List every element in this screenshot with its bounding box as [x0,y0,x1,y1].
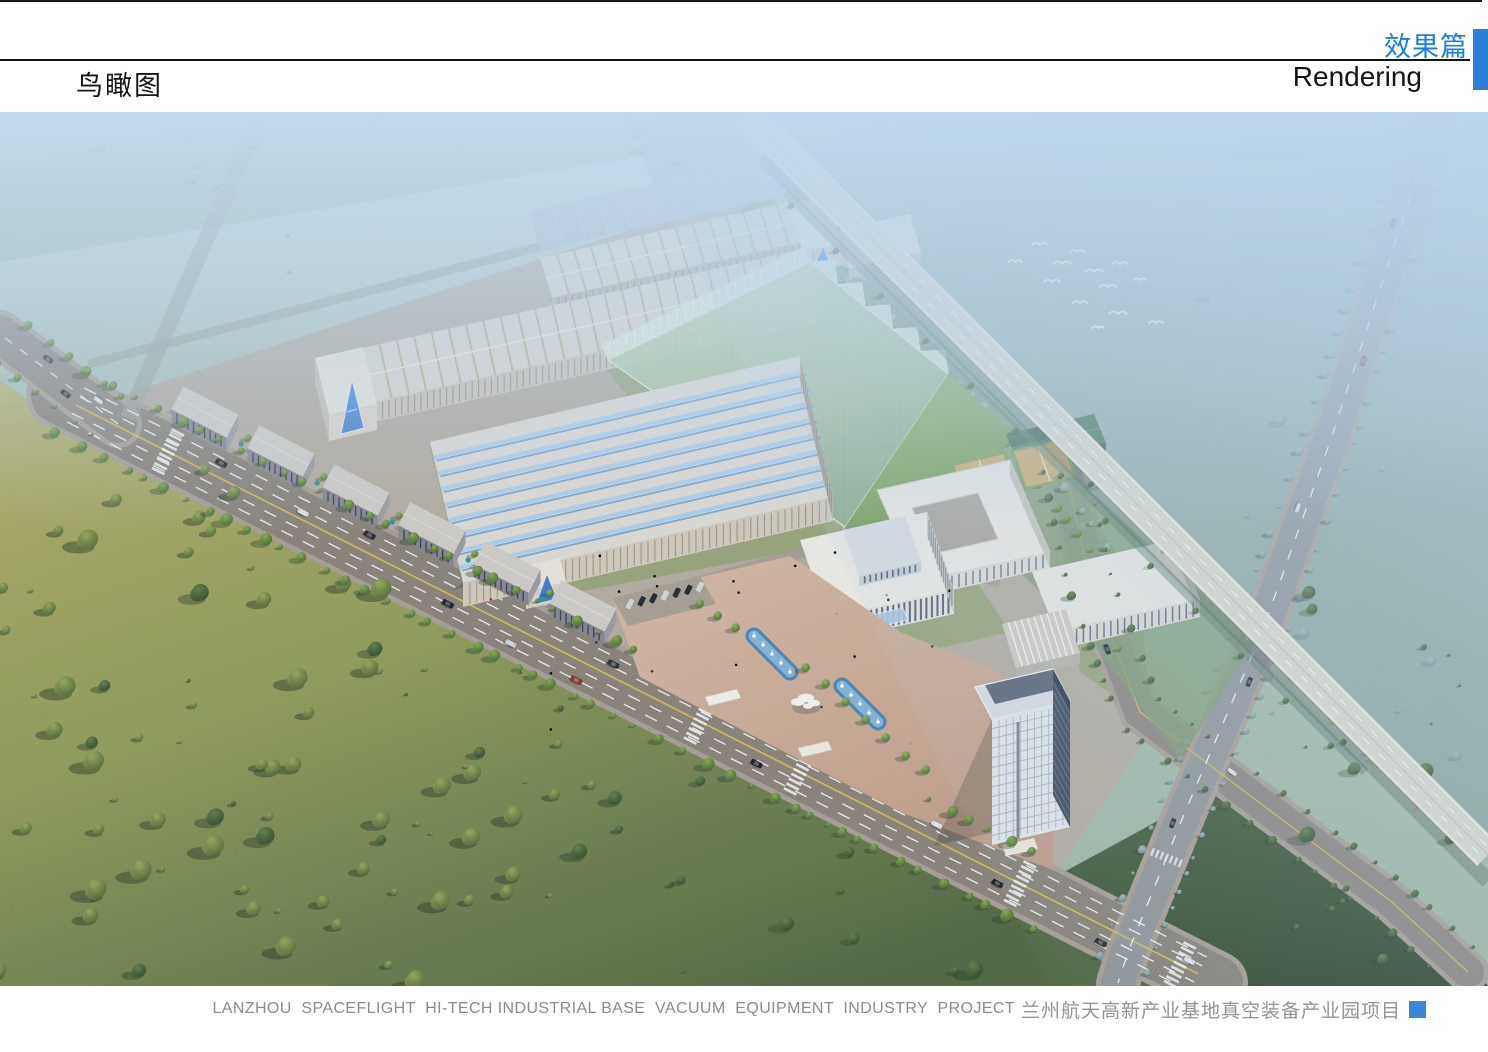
section-label-en: Rendering [1293,61,1422,93]
blue-side-tab [1473,29,1488,90]
page-title: 鸟瞰图 [76,64,163,103]
caption-english: LANZHOU SPACEFLIGHT HI-TECH INDUSTRIAL B… [212,1000,1015,1018]
rendering-scene [0,112,1488,986]
caption-chinese: 兰州航天高新产业基地真空装备产业园项目 [1021,996,1401,1023]
slide-page: 效果篇 鸟瞰图 Rendering LANZHOU SPACEFLIGHT HI… [0,0,1488,1052]
aerial-rendering-image [0,112,1488,986]
caption-row: LANZHOU SPACEFLIGHT HI-TECH INDUSTRIAL B… [0,994,1488,1024]
caption-blue-square-icon [1409,1001,1426,1018]
header-divider [0,59,1470,61]
atmosphere-haze [0,112,1488,986]
top-rule [0,0,1482,2]
